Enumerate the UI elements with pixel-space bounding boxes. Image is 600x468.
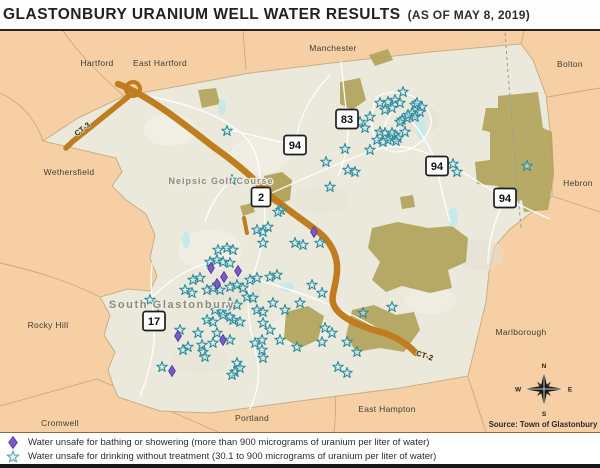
map-canvas: CT-3CT-2 28394949417 HartfordEast Hartfo… (0, 0, 600, 468)
compass-letter-n: N (542, 363, 547, 370)
compass-letter-e: E (568, 387, 573, 394)
place-label: South Glastonbury (109, 299, 235, 311)
page-title-date: (AS OF MAY 8, 2019) (408, 8, 530, 22)
route-shield: 94 (426, 157, 448, 176)
svg-text:94: 94 (499, 193, 512, 205)
town-label: Hebron (563, 178, 593, 188)
town-label: Manchester (309, 43, 356, 53)
legend-item-drinking: Water unsafe for drinking without treatm… (6, 450, 600, 463)
town-label: Cromwell (41, 418, 79, 428)
teal-star-icon (6, 450, 20, 464)
svg-text:94: 94 (289, 140, 302, 152)
town-label: Bolton (557, 59, 583, 69)
route-shield: 2 (252, 188, 271, 207)
town-label: Portland (235, 413, 269, 423)
compass-letter-s: S (542, 411, 547, 418)
legend-item-bathing: Water unsafe for bathing or showering (m… (6, 436, 600, 449)
route-shield: 94 (494, 189, 516, 208)
legend-text-drinking: Water unsafe for drinking without treatm… (28, 451, 436, 462)
svg-text:94: 94 (431, 161, 444, 173)
town-label: East Hampton (358, 404, 415, 414)
town-label: Marlborough (495, 327, 546, 337)
town-label: Wethersfield (44, 167, 95, 177)
compass-letter-w: W (515, 387, 522, 394)
source-credit: Source: Town of Glastonbury (489, 420, 598, 429)
town-label: East Hartford (133, 58, 187, 68)
route-shield: 17 (143, 312, 165, 331)
purple-diamond-icon (6, 436, 20, 449)
route-shield: 94 (284, 136, 306, 155)
town-label: Rocky Hill (28, 320, 69, 330)
svg-text:17: 17 (148, 316, 160, 328)
svg-text:2: 2 (258, 192, 264, 204)
place-label: Neipsic Golf Course (168, 176, 273, 186)
page-title: GLASTONBURY URANIUM WELL WATER RESULTS (3, 6, 401, 24)
map-legend: Water unsafe for bathing or showering (m… (0, 432, 600, 468)
svg-text:83: 83 (341, 114, 353, 126)
legend-text-bathing: Water unsafe for bathing or showering (m… (28, 437, 429, 448)
town-label: Hartford (80, 58, 113, 68)
title-bar: GLASTONBURY URANIUM WELL WATER RESULTS (… (0, 0, 600, 31)
route-shield: 83 (336, 110, 358, 129)
